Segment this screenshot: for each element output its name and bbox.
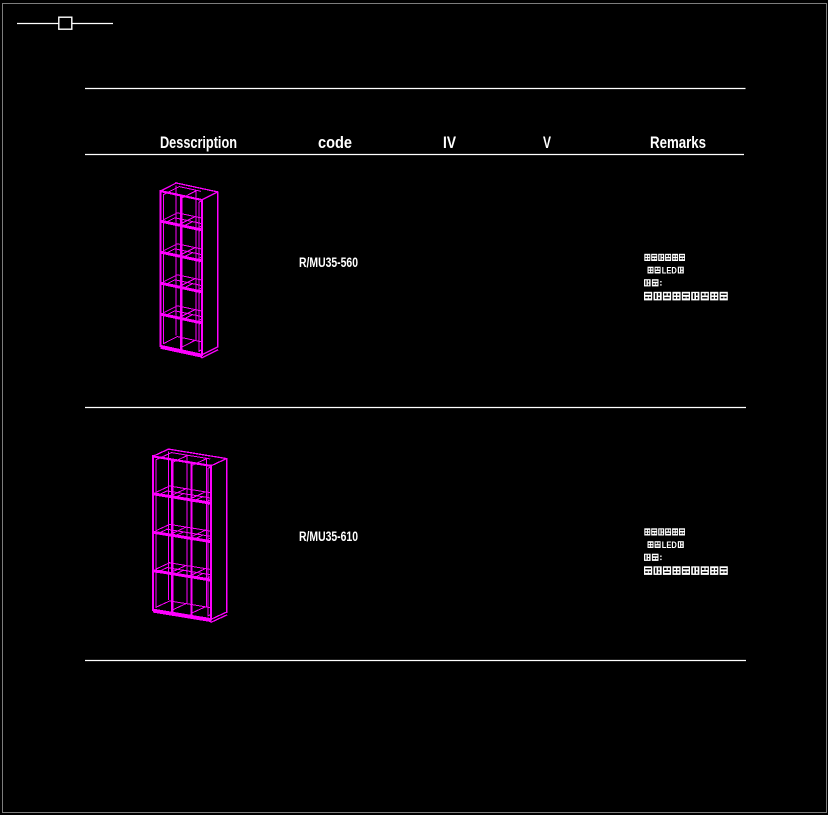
svg-text:V: V xyxy=(543,134,551,152)
svg-text:R/MU35-560: R/MU35-560 xyxy=(299,255,358,270)
svg-text:LED: LED xyxy=(662,540,677,550)
svg-text:code: code xyxy=(318,134,352,152)
svg-text:Desscription: Desscription xyxy=(160,134,237,152)
svg-text:Remarks: Remarks xyxy=(650,134,706,152)
svg-text:IV: IV xyxy=(443,134,456,152)
svg-text:R/MU35-610: R/MU35-610 xyxy=(299,529,358,544)
svg-text:LED: LED xyxy=(662,266,677,276)
